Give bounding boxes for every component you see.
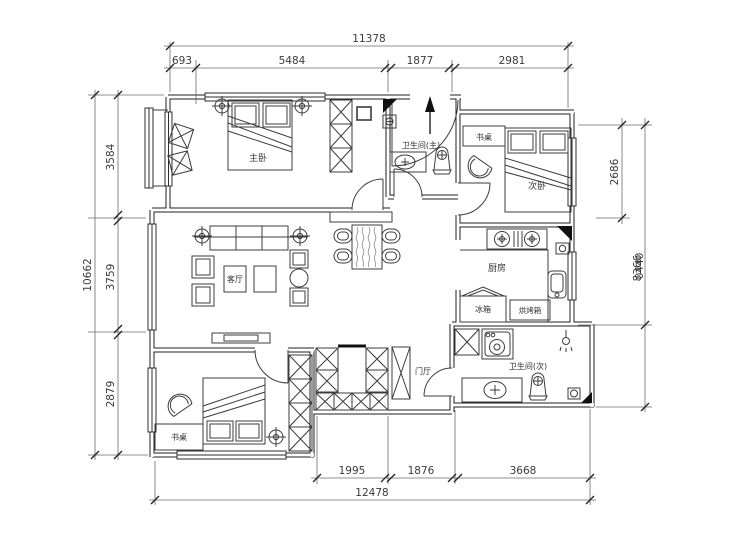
dim-bottom-total: 12478 xyxy=(355,487,388,499)
dim-top-total: 11378 xyxy=(352,33,385,45)
room-label-master-bedroom: 主卧 xyxy=(249,152,267,164)
dim-bottom-seg2: 3668 xyxy=(510,465,537,477)
floor-plan-page: 11378 693 5484 1877 2981 10662 3584 3759… xyxy=(0,0,750,550)
column xyxy=(357,107,371,120)
ceiling-lamp-icon xyxy=(192,226,212,246)
room-label-master-bath: 卫生间(主) xyxy=(402,140,440,150)
dim-left-total: 10662 xyxy=(82,258,94,291)
dim-left-seg2: 2879 xyxy=(105,381,117,408)
label-desk-bottom: 书桌 xyxy=(171,432,187,442)
room-label-living-room: 客厅 xyxy=(227,274,243,284)
master-wardrobe xyxy=(330,100,352,172)
room-label-entry-hall: 门厅 xyxy=(415,366,431,376)
dim-right-upper: 2686 xyxy=(609,158,621,185)
master-bath-fixtures xyxy=(390,147,451,174)
room-label-second-bath: 卫生间(次) xyxy=(509,361,547,371)
dim-left-seg0: 3584 xyxy=(105,143,117,170)
dim-top-seg2: 1877 xyxy=(407,55,434,67)
dim-bottom-seg1: 1876 xyxy=(408,465,435,477)
floor-plan-canvas: 11378 693 5484 1877 2981 10662 3584 3759… xyxy=(0,0,750,550)
dim-top-seg0: 693 xyxy=(172,55,192,67)
ceiling-lamp-icon xyxy=(266,427,286,447)
living-room-furniture xyxy=(192,226,308,343)
dining-set xyxy=(330,212,400,269)
toilet-icon xyxy=(433,147,451,174)
dim-right-lower-overlap: 0440 xyxy=(634,253,646,280)
entry-arrow-icon xyxy=(425,96,435,134)
toilet-icon xyxy=(529,373,547,400)
dim-top-seg1: 5484 xyxy=(279,55,306,67)
dim-left-seg1: 3759 xyxy=(105,264,117,291)
ceiling-lamp-icon xyxy=(290,226,310,246)
label-oven: 烘烤箱 xyxy=(519,305,542,315)
dimension-right: 2686 8366 0440 xyxy=(578,118,652,412)
room-label-kitchen: 厨房 xyxy=(488,262,506,274)
room-label-second-bedroom: 次卧 xyxy=(528,180,546,192)
label-desk-top: 书桌 xyxy=(476,132,492,142)
dim-top-seg3: 2981 xyxy=(499,55,526,67)
bottom-bedroom-wardrobe xyxy=(289,355,312,451)
label-fridge: 冰箱 xyxy=(475,304,491,314)
entry-cabinets xyxy=(316,346,410,410)
walls xyxy=(152,97,594,457)
dim-bottom-seg0: 1995 xyxy=(339,465,366,477)
